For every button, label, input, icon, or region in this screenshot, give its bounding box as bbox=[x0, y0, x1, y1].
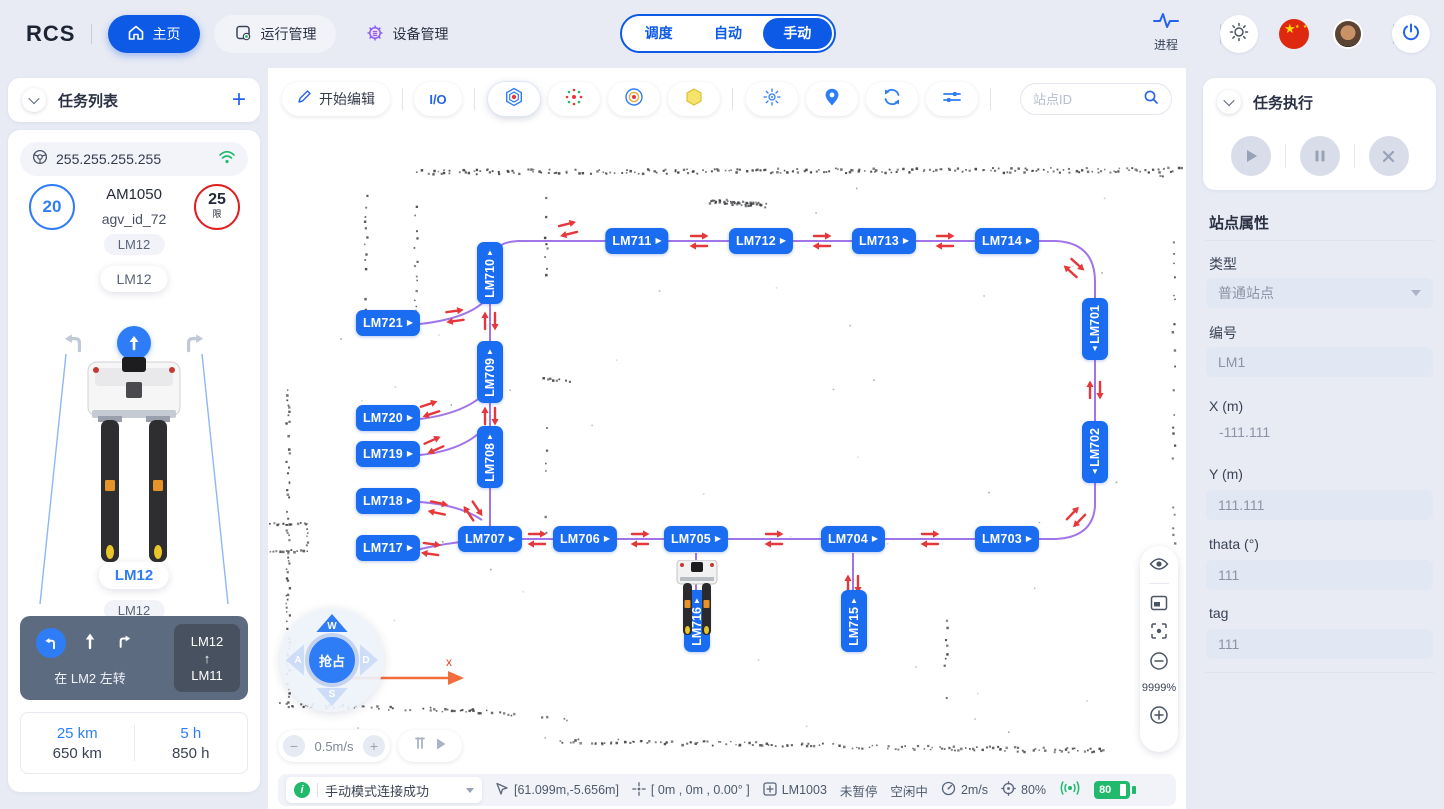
tool-target-rings[interactable] bbox=[608, 82, 660, 116]
agv-speed-limit-badge: 25 限 bbox=[194, 184, 240, 230]
divider bbox=[1285, 144, 1286, 168]
refresh-icon bbox=[882, 87, 902, 112]
front-station-chip: LM12 bbox=[99, 562, 169, 589]
speed-value: 0.5m/s bbox=[314, 739, 353, 754]
area-hexagon-icon bbox=[683, 86, 705, 113]
joystick-key-s[interactable]: S bbox=[315, 688, 349, 706]
speed-status-value: 2m/s bbox=[961, 783, 988, 797]
station-search-input[interactable] bbox=[1033, 92, 1143, 107]
power-button[interactable] bbox=[1392, 15, 1430, 53]
chevron-down-icon bbox=[466, 788, 474, 793]
map-station-LM714[interactable]: LM714 bbox=[975, 228, 1039, 254]
user-avatar[interactable] bbox=[1333, 19, 1363, 49]
route-segment: LM12 ↑ LM11 bbox=[174, 624, 240, 692]
divider bbox=[1354, 144, 1355, 168]
field-tag-label: tag bbox=[1209, 605, 1228, 621]
chevron-down-icon bbox=[1411, 290, 1421, 296]
divider bbox=[1149, 583, 1169, 584]
tool-area-hexagon[interactable] bbox=[668, 82, 720, 116]
field-y-input[interactable] bbox=[1218, 497, 1421, 513]
agv-ip-address: 255.255.255.255 bbox=[56, 151, 210, 167]
field-code-box bbox=[1206, 347, 1433, 377]
divider bbox=[1205, 240, 1434, 241]
map-station-LM705[interactable]: LM705 bbox=[664, 526, 728, 552]
nav-home[interactable]: 主页 bbox=[108, 15, 200, 53]
map-station-LM708[interactable]: LM708 bbox=[477, 426, 503, 488]
field-tag-input[interactable] bbox=[1218, 636, 1421, 652]
monitor-gear-icon bbox=[234, 24, 252, 45]
localization-quality: 80% bbox=[1001, 781, 1046, 799]
home-icon bbox=[128, 25, 144, 44]
field-theta-input[interactable] bbox=[1218, 567, 1421, 583]
divider bbox=[474, 88, 475, 110]
joystick-seize-button[interactable]: 抢占 bbox=[305, 633, 359, 687]
km-total: 650 km bbox=[53, 745, 102, 762]
map-station-LM707[interactable]: LM707 bbox=[458, 526, 522, 552]
agv-station-chip2: LM12 bbox=[100, 266, 167, 292]
info-icon bbox=[294, 782, 310, 798]
process-label: 进程 bbox=[1146, 36, 1186, 53]
field-x-label: X (m) bbox=[1209, 398, 1243, 414]
map-station-LM703[interactable]: LM703 bbox=[975, 526, 1039, 552]
map-station-LM711[interactable]: LM711 bbox=[605, 228, 668, 254]
task-sidebar: 任务列表 + 255.255.255.255 20 AM1050 agv_id_… bbox=[0, 68, 268, 809]
zoom-out-button[interactable] bbox=[1149, 651, 1169, 671]
hours-total: 850 h bbox=[172, 745, 210, 762]
robot-pose: [ 0m , 0m , 0.00° ] bbox=[632, 782, 750, 799]
map-route-layer bbox=[268, 68, 1186, 809]
collapse-task-list-button[interactable] bbox=[22, 88, 46, 112]
pulse-icon bbox=[1153, 16, 1179, 33]
io-button[interactable]: I/O bbox=[414, 82, 462, 116]
map-station-LM706[interactable]: LM706 bbox=[553, 526, 617, 552]
task-list-header: 任务列表 + bbox=[8, 78, 260, 122]
map-station-LM710[interactable]: LM710 bbox=[477, 242, 503, 304]
mode-switcher: 调度 自动 手动 bbox=[620, 14, 836, 53]
scatter-points-icon bbox=[563, 86, 585, 113]
properties-sidebar: 任务执行 站点属性 类型 普通站点 编号 X (m) -111.111 Y (m… bbox=[1195, 68, 1444, 809]
straight-icon bbox=[82, 631, 98, 656]
navigation-hint-panel: 在 LM2 左转 LM12 ↑ LM11 bbox=[20, 616, 248, 700]
battery-indicator: 80 bbox=[1094, 781, 1130, 799]
manual-joystick: W A S D 抢占 bbox=[280, 608, 384, 712]
task-play-button[interactable] bbox=[1231, 136, 1271, 176]
battery-value: 80 bbox=[1099, 784, 1111, 796]
agv-limit-value: 25 bbox=[208, 192, 226, 207]
task-exec-card: 任务执行 bbox=[1203, 78, 1436, 190]
battery-nub bbox=[1132, 786, 1136, 794]
nav-operation[interactable]: 运行管理 bbox=[214, 15, 336, 53]
joystick-key-d[interactable]: D bbox=[360, 643, 378, 677]
task-exec-title: 任务执行 bbox=[1253, 92, 1422, 113]
filter-sliders-icon bbox=[941, 88, 963, 111]
connection-status-dropdown[interactable]: 手动模式连接成功 bbox=[286, 777, 482, 803]
agv-robot-marker[interactable] bbox=[675, 560, 719, 645]
route-from: LM12 bbox=[191, 633, 224, 650]
manual-speed-control: − 0.5m/s + bbox=[278, 730, 390, 762]
speed-increase-button[interactable]: + bbox=[363, 735, 385, 757]
tool-scatter-points[interactable] bbox=[548, 82, 600, 116]
tool-radar[interactable] bbox=[746, 82, 798, 116]
chevron-down-icon bbox=[1223, 95, 1234, 106]
io-label: I/O bbox=[429, 92, 446, 107]
speed-decrease-button[interactable]: − bbox=[283, 735, 305, 757]
route-arrow-icon: ↑ bbox=[204, 650, 211, 667]
route-to: LM11 bbox=[191, 667, 223, 684]
localization-icon bbox=[1001, 781, 1016, 799]
turn-right-icon bbox=[114, 631, 134, 656]
agv-ip-row: 255.255.255.255 bbox=[20, 142, 248, 176]
map-station-LM712[interactable]: LM712 bbox=[729, 228, 793, 254]
connection-message: 手动模式连接成功 bbox=[325, 781, 459, 800]
visibility-eye-button[interactable] bbox=[1149, 556, 1169, 572]
field-code-input[interactable] bbox=[1218, 354, 1421, 370]
plus-square-icon bbox=[763, 782, 777, 799]
tool-location-pin[interactable] bbox=[806, 82, 858, 116]
sun-icon bbox=[1229, 22, 1249, 47]
odometer-stats: 25 km 650 km 5 h 850 h bbox=[20, 712, 248, 774]
center-focus-button[interactable] bbox=[1150, 622, 1168, 640]
km-current: 25 km bbox=[57, 725, 98, 742]
add-task-button[interactable]: + bbox=[232, 90, 246, 110]
map-station-LM720[interactable]: LM720 bbox=[356, 405, 420, 431]
start-edit-label: 开始编辑 bbox=[319, 89, 375, 109]
field-type-select[interactable]: 普通站点 bbox=[1206, 278, 1433, 308]
top-bar: RCS 主页 运行管理 设备管理 调度 自动 手动 进程 bbox=[0, 0, 1444, 68]
target-rings-icon bbox=[623, 86, 645, 113]
map-station-LM713[interactable]: LM713 bbox=[852, 228, 916, 254]
chevron-down-icon bbox=[28, 93, 39, 104]
app-logo: RCS bbox=[26, 21, 75, 47]
rcs-app: RCS 主页 运行管理 设备管理 调度 自动 手动 进程 bbox=[0, 0, 1444, 809]
station-normal-icon bbox=[503, 86, 525, 113]
nav-device[interactable]: 设备管理 bbox=[346, 15, 468, 53]
nav-operation-label: 运行管理 bbox=[260, 24, 316, 44]
minimap-button[interactable] bbox=[1150, 595, 1168, 611]
crosshair-icon bbox=[632, 782, 646, 799]
steering-wheel-icon bbox=[32, 149, 48, 170]
tool-station-normal[interactable] bbox=[488, 82, 540, 116]
field-type-label: 类型 bbox=[1209, 254, 1237, 274]
current-station-value: LM1003 bbox=[782, 783, 827, 797]
status-bar: 手动模式连接成功 [61.099m,-5.656m] [ 0m , 0m , 0… bbox=[278, 774, 1176, 806]
field-theta-box bbox=[1206, 560, 1433, 590]
pause-state: 未暂停 bbox=[840, 781, 878, 800]
task-cancel-button[interactable] bbox=[1369, 136, 1409, 176]
divider bbox=[732, 88, 733, 110]
zoom-in-button[interactable] bbox=[1149, 705, 1169, 725]
axis-x-label: x bbox=[446, 656, 452, 669]
work-state: 空闲中 bbox=[890, 781, 928, 800]
agv-limit-unit: 限 bbox=[212, 207, 221, 222]
current-station: LM1003 bbox=[763, 782, 827, 799]
map-station-LM721[interactable]: LM721 bbox=[356, 310, 420, 336]
cursor-icon bbox=[495, 782, 509, 799]
pencil-icon bbox=[297, 89, 312, 109]
power-icon bbox=[1401, 22, 1421, 47]
mode-tab-manual[interactable]: 手动 bbox=[763, 18, 832, 49]
map-station-LM717[interactable]: LM717 bbox=[356, 535, 420, 561]
search-icon[interactable] bbox=[1143, 89, 1159, 110]
tool-filter-sliders[interactable] bbox=[926, 82, 978, 116]
mode-tab-auto[interactable]: 自动 bbox=[693, 18, 762, 49]
field-theta-label: thata (°) bbox=[1209, 536, 1259, 552]
speedometer-icon bbox=[941, 781, 956, 799]
collapse-task-exec-button[interactable] bbox=[1217, 90, 1241, 114]
divider bbox=[990, 88, 991, 110]
zoom-level-value: 9999% bbox=[1142, 682, 1176, 694]
location-pin-icon bbox=[822, 87, 842, 112]
field-code-label: 编号 bbox=[1209, 323, 1237, 343]
divider bbox=[91, 24, 92, 44]
map-canvas[interactable]: LM711LM712LM713LM714LM710LM709LM708LM721… bbox=[268, 68, 1186, 809]
language-flag-button[interactable] bbox=[1279, 19, 1309, 49]
wifi-icon bbox=[218, 150, 236, 169]
station-props-title: 站点属性 bbox=[1209, 212, 1269, 233]
theme-toggle-button[interactable] bbox=[1220, 15, 1258, 53]
divider bbox=[1205, 672, 1434, 673]
field-y-box bbox=[1206, 490, 1433, 520]
divider bbox=[402, 88, 403, 110]
navigation-hint-text: 在 LM2 左转 bbox=[20, 668, 160, 687]
map-station-LM719[interactable]: LM719 bbox=[356, 441, 420, 467]
robot-pose-value: [ 0m , 0m , 0.00° ] bbox=[651, 783, 750, 797]
cursor-position: [61.099m,-5.656m] bbox=[495, 782, 619, 799]
map-view-controls: 9999% bbox=[1140, 546, 1178, 752]
agv-card: 255.255.255.255 20 AM1050 agv_id_72 LM12… bbox=[8, 130, 260, 792]
map-station-LM715[interactable]: LM715 bbox=[841, 590, 867, 652]
hours-current: 5 h bbox=[180, 725, 201, 742]
speed-status: 2m/s bbox=[941, 781, 988, 799]
tool-refresh[interactable] bbox=[866, 82, 918, 116]
process-button[interactable]: 进程 bbox=[1146, 12, 1186, 53]
nav-home-label: 主页 bbox=[152, 24, 180, 44]
fork-action-button[interactable] bbox=[398, 730, 462, 762]
cursor-position-value: [61.099m,-5.656m] bbox=[514, 783, 619, 797]
map-station-LM702[interactable]: LM702 bbox=[1082, 421, 1108, 483]
start-edit-button[interactable]: 开始编辑 bbox=[282, 82, 390, 116]
play-small-icon bbox=[436, 737, 446, 755]
joystick-key-w[interactable]: W bbox=[315, 614, 349, 632]
divider bbox=[317, 783, 318, 797]
agv-station-chip: LM12 bbox=[104, 234, 165, 255]
station-search bbox=[1020, 83, 1172, 115]
task-pause-button[interactable] bbox=[1300, 136, 1340, 176]
map-station-LM701[interactable]: LM701 bbox=[1082, 298, 1108, 360]
mode-tab-dispatch[interactable]: 调度 bbox=[624, 18, 693, 49]
radar-icon bbox=[761, 86, 783, 113]
map-station-LM709[interactable]: LM709 bbox=[477, 341, 503, 403]
joystick-key-a[interactable]: A bbox=[286, 643, 304, 677]
gear-icon bbox=[366, 24, 384, 45]
field-tag-box bbox=[1206, 629, 1433, 659]
signal-icon bbox=[1059, 780, 1081, 801]
task-list-title: 任务列表 bbox=[58, 90, 232, 111]
fork-icon bbox=[414, 736, 430, 757]
next-turn-left-icon bbox=[36, 628, 66, 658]
field-y-label: Y (m) bbox=[1209, 466, 1243, 482]
battery-level-gap bbox=[1120, 784, 1126, 796]
map-station-LM704[interactable]: LM704 bbox=[821, 526, 885, 552]
field-x-value: -111.111 bbox=[1219, 424, 1270, 440]
nav-device-label: 设备管理 bbox=[392, 24, 448, 44]
map-station-LM718[interactable]: LM718 bbox=[356, 488, 420, 514]
localization-quality-value: 80% bbox=[1021, 783, 1046, 797]
field-type-value: 普通站点 bbox=[1218, 283, 1274, 303]
